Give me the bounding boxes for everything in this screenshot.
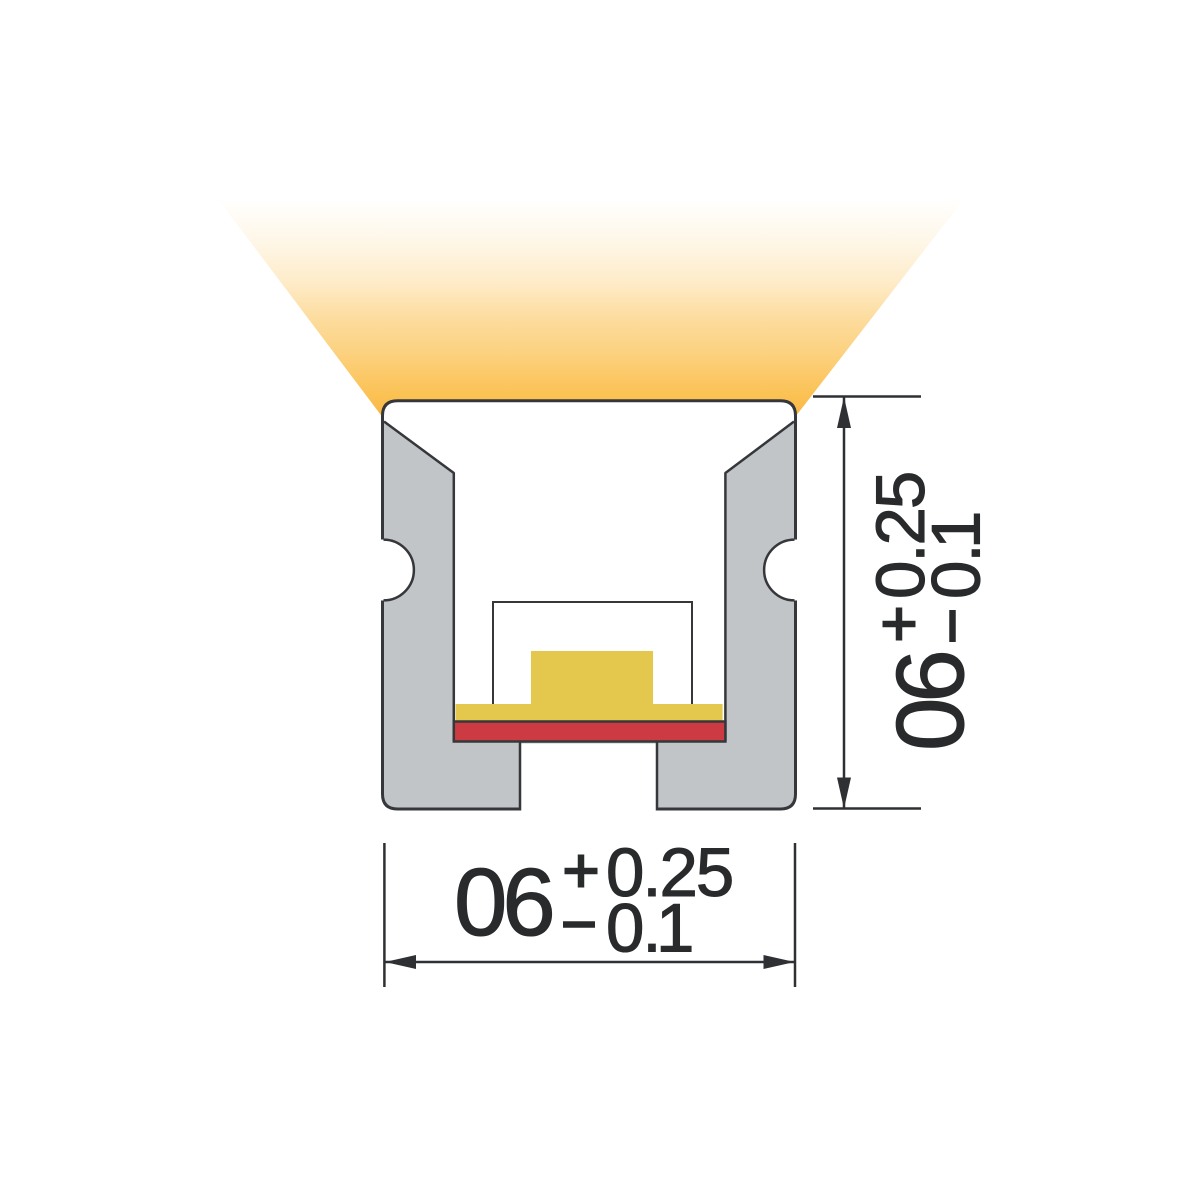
svg-text:0.1: 0.1	[606, 890, 692, 967]
svg-text:0.1: 0.1	[918, 513, 995, 599]
svg-text:06: 06	[454, 849, 552, 956]
svg-text:06: 06	[877, 653, 984, 751]
